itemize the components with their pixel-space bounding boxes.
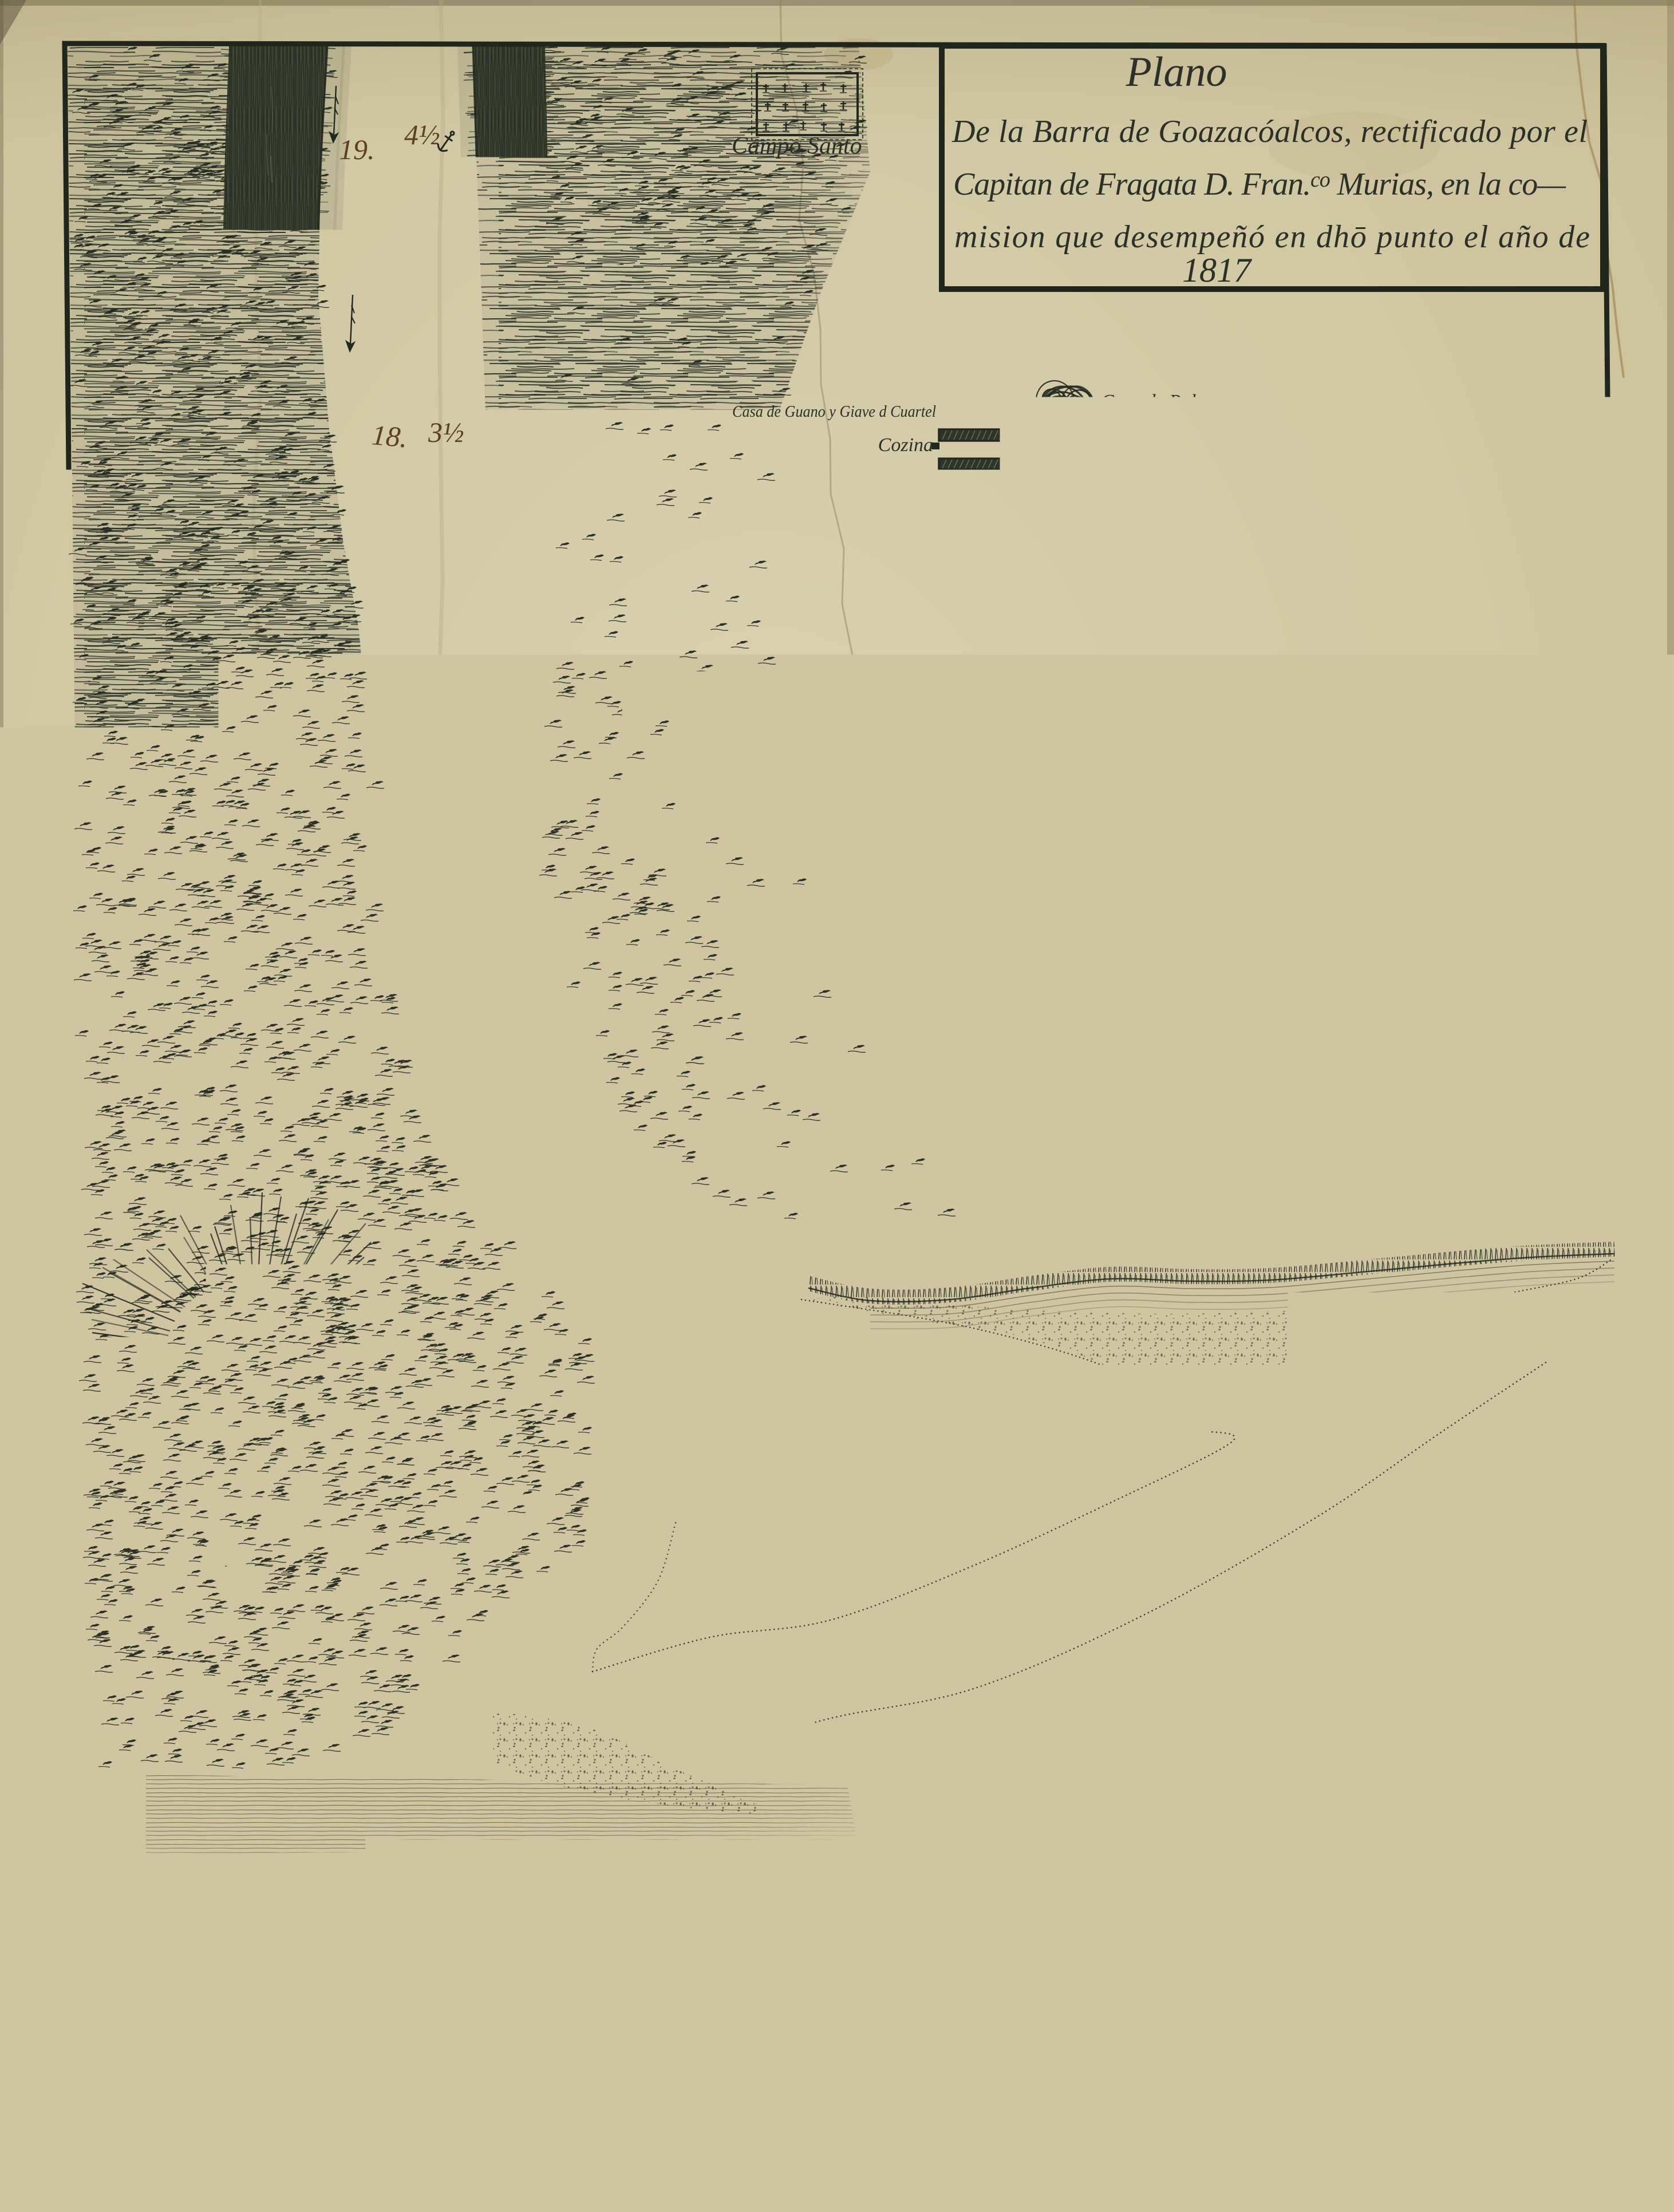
svg-text:14.: 14. — [757, 1309, 793, 1342]
svg-text:Cuartel viejo: Cuartel viejo — [1024, 452, 1126, 473]
svg-text:8. A.: 8. A. — [1388, 1995, 1441, 2027]
svg-text:De la Barra de Goazacóalcos, r: De la Barra de Goazacóalcos, rectificado… — [952, 114, 1588, 149]
svg-text:4½: 4½ — [404, 118, 440, 151]
svg-text:Casa de Guano y Giave d Cuarte: Casa de Guano y Giave d Cuartel — [732, 402, 936, 421]
svg-text:2.: 2. — [701, 1505, 721, 1534]
svg-text:Bateria con 8 Cañones: Bateria con 8 Cañones — [1012, 493, 1191, 514]
svg-text:6 A.: 6 A. — [1387, 1739, 1435, 1771]
svg-text:18. 6: 18. 6 — [376, 548, 436, 585]
svg-text:la barra y bien señalada su en: la barra y bien señalada su enfilacion, … — [1028, 873, 1607, 902]
svg-text:5.: 5. — [814, 1299, 838, 1334]
svg-text:4: 4 — [494, 1964, 509, 1997]
svg-text:hacer las correspond.tes marca: hacer las correspond.tes marcaciones, bi… — [1022, 821, 1601, 851]
svg-text:fango: fango — [820, 1790, 872, 1815]
svg-text:1½: 1½ — [672, 1549, 705, 1578]
svg-text:lado no llegue al de 18 pies d: lado no llegue al de 18 pies de Burgos q… — [1018, 985, 1596, 1014]
svg-text:6: 6 — [1126, 1837, 1140, 1870]
svg-text:Los numeros de fonda son braza: Los numeros de fonda son brazas de a dos… — [1023, 674, 1602, 703]
svg-text:3oo: 3oo — [293, 2039, 322, 2060]
svg-text:5½: 5½ — [1003, 1839, 1043, 1875]
svg-text:1817: 1817 — [1182, 251, 1253, 289]
svg-text:6½ A.: 6½ A. — [498, 2114, 573, 2150]
svg-text:3½: 3½ — [992, 1680, 1032, 1714]
svg-text:Buq.e venir a tomarla con conf: Buq.e venir a tomarla con confianza siem… — [1024, 928, 1602, 957]
svg-text:cados con precision p.r no hab: cados con precision p.r no haber permiti… — [1020, 771, 1599, 800]
svg-text:1½.: 1½. — [738, 1708, 781, 1742]
svg-text:3½: 3½ — [428, 416, 464, 448]
svg-text:1.: 1. — [656, 1629, 674, 1656]
svg-text:1o.: 1o. — [804, 1445, 834, 1471]
svg-text:2. A.: 2. A. — [1376, 1397, 1427, 1427]
svg-text:en todas estaciones: en todas estaciones — [1028, 1039, 1233, 1068]
svg-text:12.: 12. — [804, 1372, 840, 1404]
svg-text:2½.: 2½. — [726, 1435, 765, 1464]
svg-text:3 A. B.: 3 A. B. — [515, 1853, 593, 1885]
svg-text:6oo: 6oo — [403, 2040, 432, 2061]
svg-text:Plano: Plano — [1126, 49, 1227, 96]
svg-text:4. A.: 4. A. — [1381, 1576, 1434, 1608]
svg-text:4½: 4½ — [804, 1630, 837, 1659]
svg-text:3: 3 — [787, 1798, 803, 1831]
svg-text:Vista de la entrada del Rio de: Vista de la entrada del Rio de Goazacoal… — [535, 1980, 1257, 2008]
svg-text:4½: 4½ — [796, 1885, 831, 1915]
svg-text:2½: 2½ — [818, 1682, 867, 1727]
svg-text:mision que desempeñó en dhō pu: mision que desempeñó en dhō punto el año… — [954, 219, 1590, 255]
svg-text:fangoso: fangoso — [1459, 1737, 1527, 1761]
svg-text:(c) Real Academia de la Histor: (c) Real Academia de la Historia — [6, 2181, 185, 2196]
svg-text:fango: fango — [1040, 1676, 1092, 1702]
svg-text:9.: 9. — [804, 1510, 824, 1539]
svg-text:3.: 3. — [889, 1628, 909, 1656]
svg-text:19.: 19. — [339, 133, 375, 165]
svg-text:3.: 3. — [1166, 1586, 1187, 1616]
svg-text:Cozina: Cozina — [878, 434, 933, 456]
svg-text:Atalaya: Atalaya — [1110, 417, 1171, 439]
svg-text:Capitan de Fragata D. Fran.co: Capitan de Fragata D. Fran.co Murias, en… — [953, 167, 1566, 202]
svg-text:fango: fango — [1047, 1834, 1101, 1861]
svg-text:Escala de 6oo. pies de Burgos: Escala de 6oo. pies de Burgos — [193, 2081, 484, 2108]
svg-text:siendo prevencion que los del: siendo prevencion que los del canal de a… — [1018, 721, 1596, 750]
svg-text:Casa de Polvora: Casa de Polvora — [1101, 391, 1232, 412]
svg-text:6.: 6. — [800, 1583, 820, 1613]
svg-text:distancia 2 millas de la costa: distancia 2 millas de la costa. — [535, 2013, 836, 2041]
svg-text:1oo: 1oo — [222, 2041, 251, 2062]
svg-text:Lama suelta: Lama suelta — [836, 1871, 944, 1895]
svg-text:Nota: Nota — [1209, 544, 1274, 581]
svg-text:18.: 18. — [370, 418, 409, 453]
svg-text:17. 4½: 17. 4½ — [396, 704, 476, 740]
svg-text:4.: 4. — [1147, 1713, 1168, 1743]
svg-text:Asta de Band.a: Asta de Band.a — [814, 474, 931, 496]
svg-text:Campo Santo: Campo Santo — [732, 133, 862, 159]
